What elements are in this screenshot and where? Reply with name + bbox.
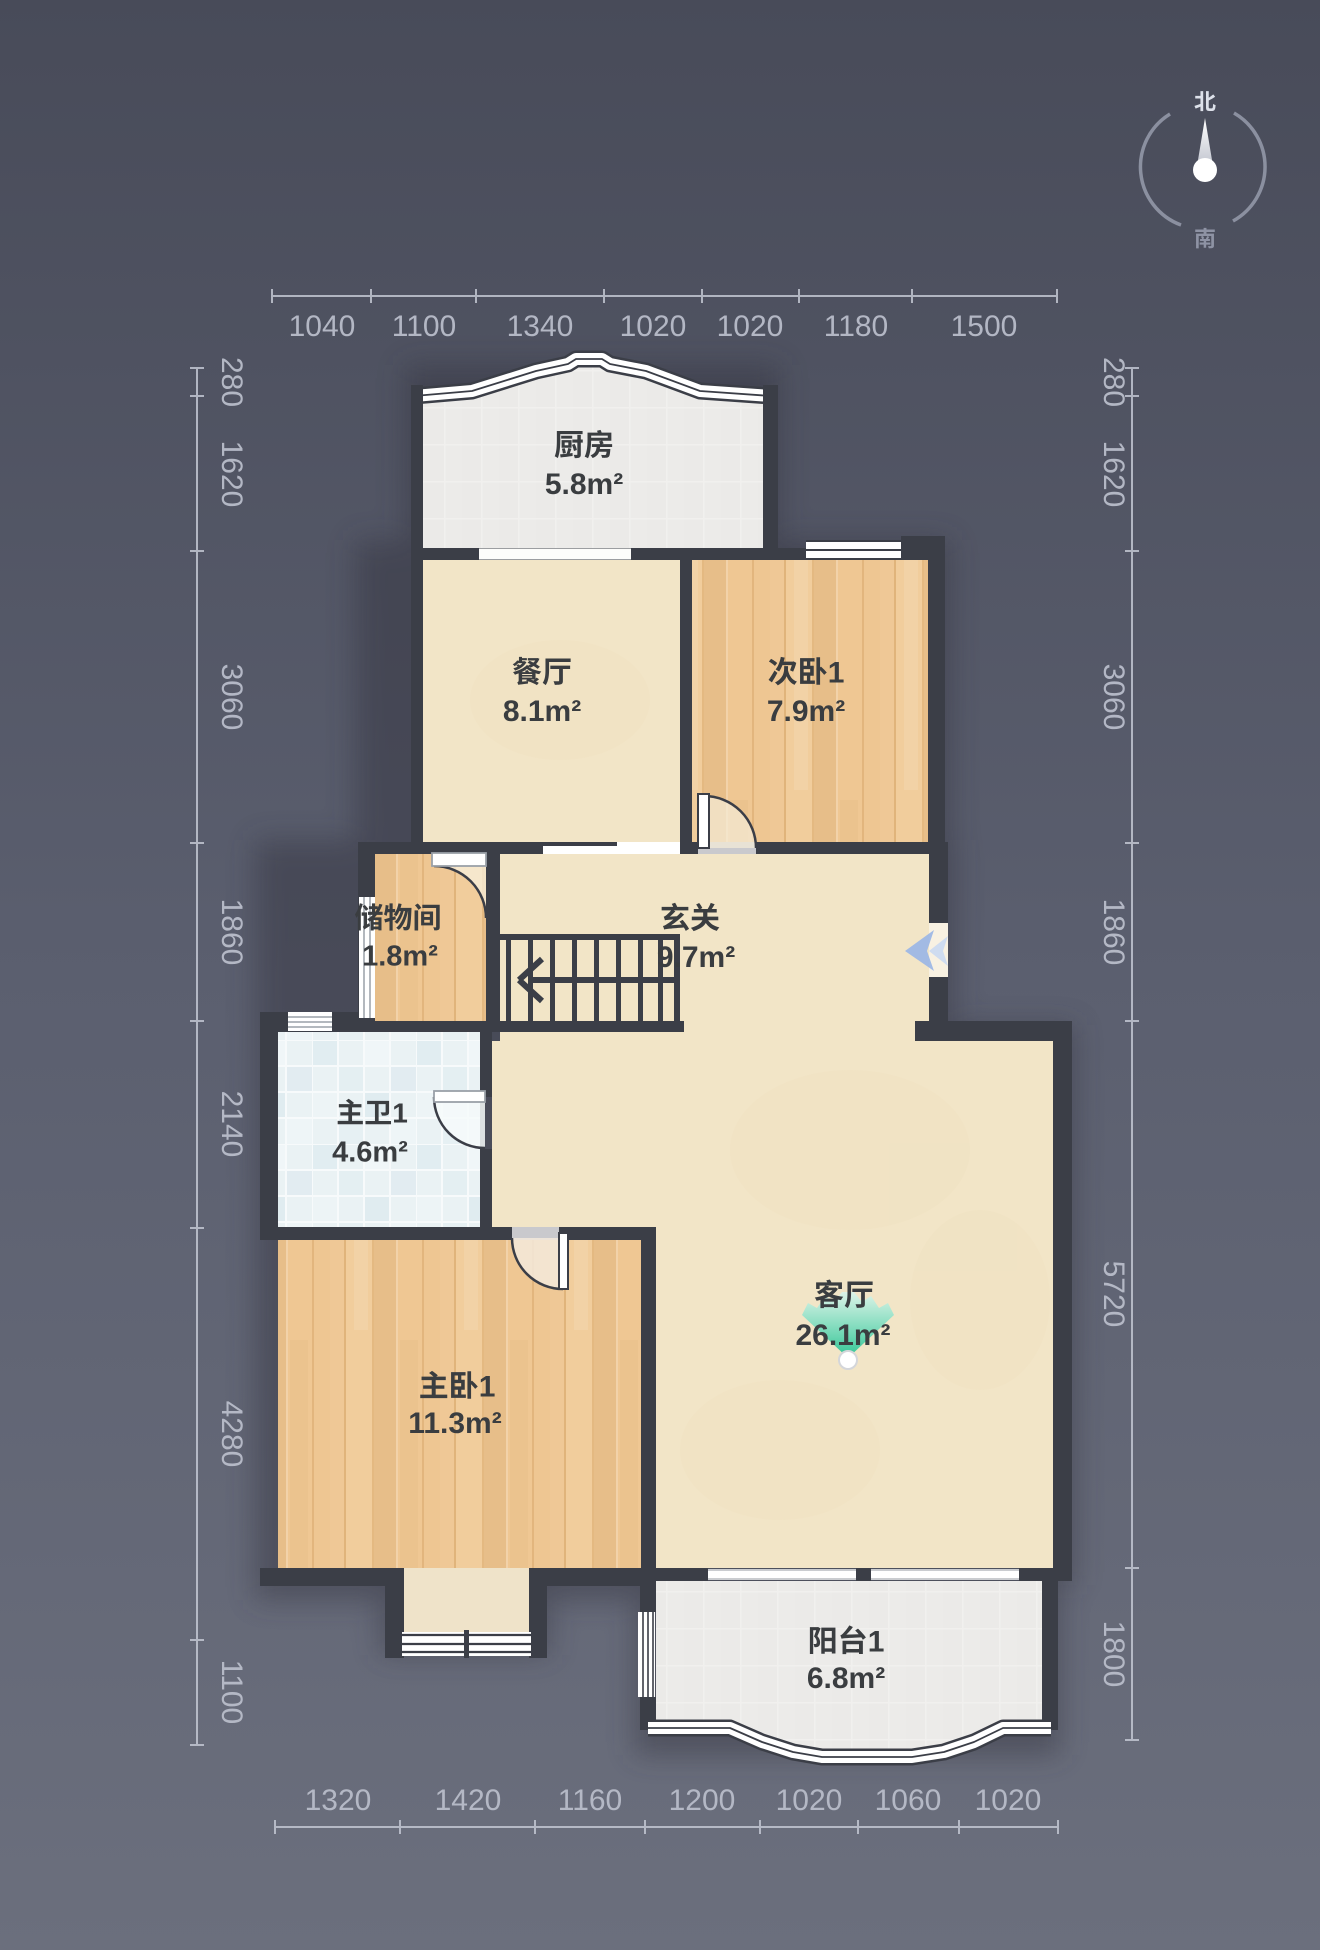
svg-text:1320: 1320 — [305, 1784, 372, 1817]
svg-text:1040: 1040 — [289, 310, 356, 343]
svg-text:6.8m²: 6.8m² — [807, 1662, 885, 1695]
svg-text:8.1m²: 8.1m² — [503, 695, 581, 728]
svg-text:1860: 1860 — [1097, 899, 1130, 966]
svg-text:5.8m²: 5.8m² — [545, 468, 623, 501]
svg-text:1180: 1180 — [824, 310, 889, 343]
svg-text:1620: 1620 — [215, 441, 248, 508]
svg-text:3060: 3060 — [215, 664, 248, 731]
svg-text:280: 280 — [215, 357, 248, 407]
svg-text:1: 1 — [479, 1370, 496, 1403]
svg-text:280: 280 — [1097, 357, 1130, 407]
svg-text:1: 1 — [868, 1625, 885, 1658]
svg-text:1020: 1020 — [776, 1784, 843, 1817]
svg-text:26.1m²: 26.1m² — [795, 1319, 890, 1352]
svg-text:2140: 2140 — [215, 1091, 248, 1158]
svg-text:1420: 1420 — [435, 1784, 502, 1817]
svg-text:3060: 3060 — [1097, 664, 1130, 731]
svg-text:1160: 1160 — [558, 1784, 623, 1817]
svg-text:1020: 1020 — [717, 310, 784, 343]
svg-text:7.9m²: 7.9m² — [767, 695, 845, 728]
svg-text:1860: 1860 — [215, 899, 248, 966]
svg-text:1100: 1100 — [215, 1660, 248, 1725]
svg-text:1620: 1620 — [1097, 441, 1130, 508]
svg-text:1340: 1340 — [507, 310, 574, 343]
svg-text:11.3m²: 11.3m² — [408, 1407, 501, 1440]
svg-text:1100: 1100 — [392, 310, 457, 343]
svg-text:4.6m²: 4.6m² — [332, 1136, 408, 1168]
svg-text:1020: 1020 — [975, 1784, 1042, 1817]
svg-text:9.7m²: 9.7m² — [657, 941, 735, 974]
svg-text:1060: 1060 — [875, 1784, 942, 1817]
svg-text:1: 1 — [828, 656, 845, 689]
svg-text:1500: 1500 — [951, 310, 1018, 343]
svg-text:1800: 1800 — [1097, 1621, 1130, 1688]
svg-text:1: 1 — [392, 1098, 408, 1129]
svg-text:1200: 1200 — [669, 1784, 736, 1817]
svg-text:4280: 4280 — [215, 1401, 248, 1468]
svg-text:1020: 1020 — [620, 310, 687, 343]
svg-text:1.8m²: 1.8m² — [362, 940, 438, 972]
svg-text:5720: 5720 — [1097, 1261, 1130, 1328]
